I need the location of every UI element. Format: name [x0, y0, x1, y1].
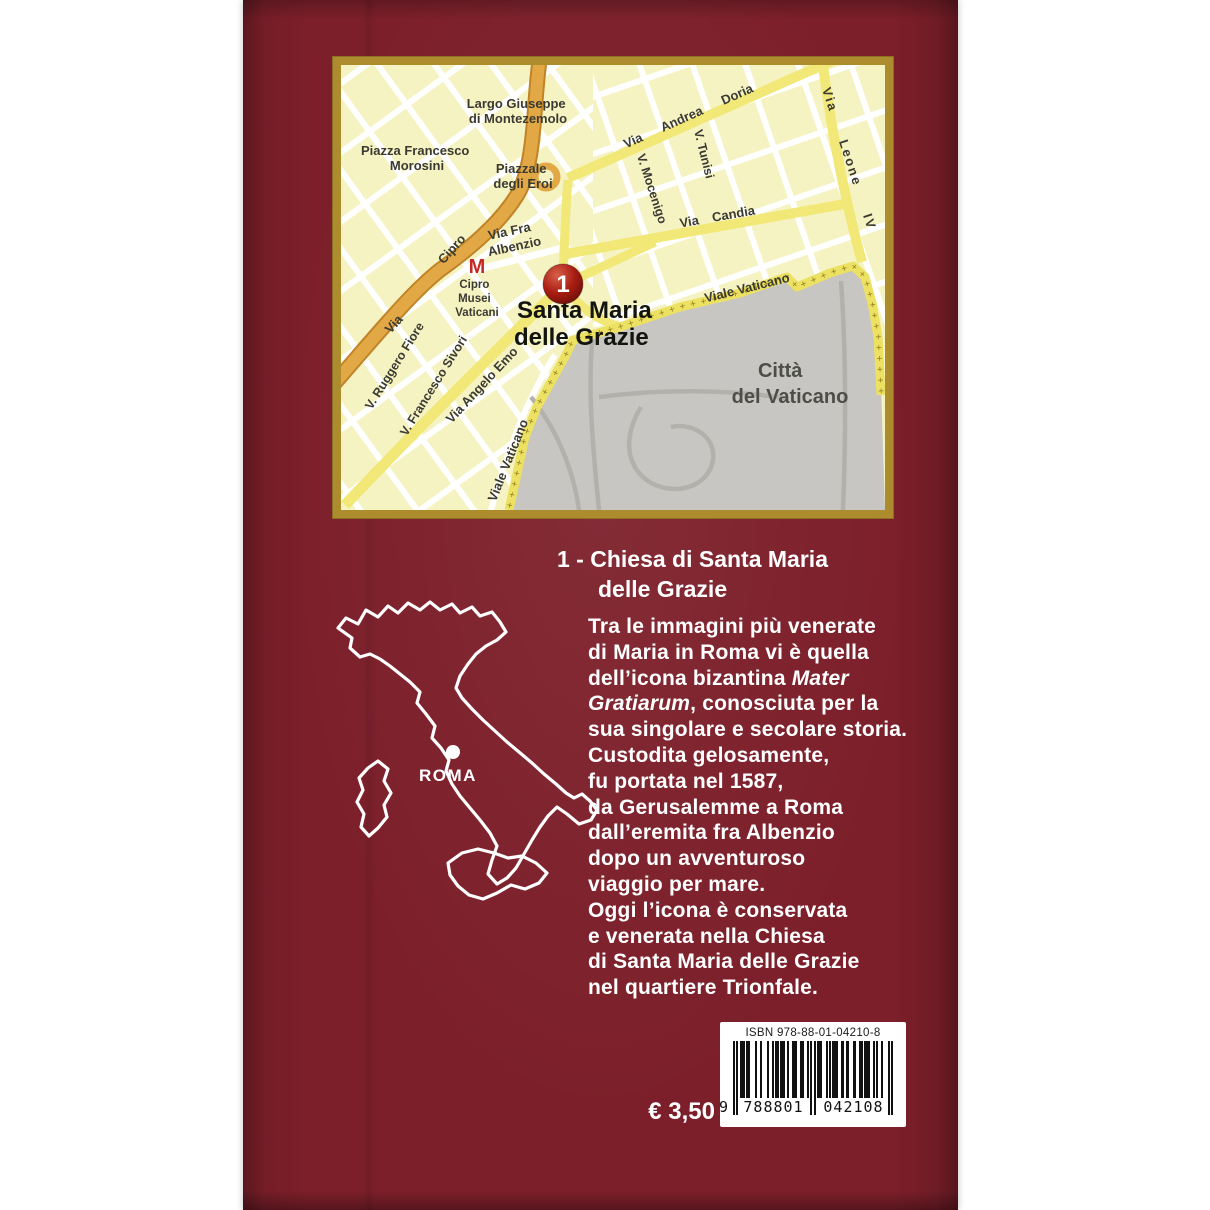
- metro-icon: M: [469, 256, 486, 278]
- label-largo-montezemolo: Largo Giuseppe di Montezemolo: [467, 96, 570, 126]
- barcode: 9 788801 042108: [733, 1041, 893, 1117]
- body-line: nel quartiere Trionfale.: [588, 975, 928, 1001]
- rome-map-svg: ++++++++++++++++++++++++++++++++++++++++…: [341, 65, 885, 510]
- book-back-cover-photo: ++++++++++++++++++++++++++++++++++++++++…: [0, 0, 1210, 1210]
- body-line: Gratiarum, conosciuta per la: [588, 691, 928, 717]
- label-piazzale-eroi: Piazzale degli Eroi: [493, 161, 552, 191]
- body-line: sua singolare e secolare storia.: [588, 717, 928, 743]
- price: € 3,50: [615, 1098, 715, 1126]
- barcode-digit-lead: 9: [719, 1098, 728, 1116]
- body-line: Tra le immagini più venerate: [588, 614, 928, 640]
- italy-outline: [338, 602, 597, 884]
- rome-dot: [446, 745, 460, 759]
- barcode-panel: ISBN 978-88-01-04210-8 9 788801 042108: [720, 1022, 906, 1127]
- body-line: e venerata nella Chiesa: [588, 924, 928, 950]
- italy-inset: ROMA: [300, 585, 620, 915]
- label-metro-cipro: Cipro Musei Vaticani: [455, 279, 498, 319]
- body-line: Oggi l’icona è conservata: [588, 898, 928, 924]
- description-text: Tra le immagini più veneratedi Maria in …: [588, 614, 928, 1001]
- body-line: di Maria in Roma vi è quella: [588, 640, 928, 666]
- section-title: 1 - Chiesa di Santa Maria delle Grazie: [557, 544, 828, 604]
- rome-map: ++++++++++++++++++++++++++++++++++++++++…: [333, 57, 893, 518]
- body-line: viaggio per mare.: [588, 872, 928, 898]
- section-title-line1: 1 - Chiesa di Santa Maria: [557, 544, 828, 574]
- barcode-digits-group2: 042108: [819, 1098, 888, 1116]
- body-line: dell’icona bizantina Mater: [588, 666, 928, 692]
- isbn-text: ISBN 978-88-01-04210-8: [720, 1022, 906, 1039]
- label-santa-maria-delle-grazie: Santa Maria delle Grazie: [514, 297, 658, 351]
- sicily-outline: [448, 849, 547, 899]
- barcode-digits-group1: 788801: [739, 1098, 808, 1116]
- sardinia-outline: [357, 761, 391, 836]
- body-line: da Gerusalemme a Roma: [588, 795, 928, 821]
- book-cover: ++++++++++++++++++++++++++++++++++++++++…: [243, 0, 958, 1210]
- body-line: Custodita gelosamente,: [588, 743, 928, 769]
- poi-marker-number: 1: [556, 271, 569, 298]
- body-line: dall’eremita fra Albenzio: [588, 820, 928, 846]
- roma-label: ROMA: [419, 766, 477, 785]
- body-line: di Santa Maria delle Grazie: [588, 949, 928, 975]
- body-line: fu portata nel 1587,: [588, 769, 928, 795]
- section-title-line2: delle Grazie: [557, 574, 828, 604]
- body-line: dopo un avventuroso: [588, 846, 928, 872]
